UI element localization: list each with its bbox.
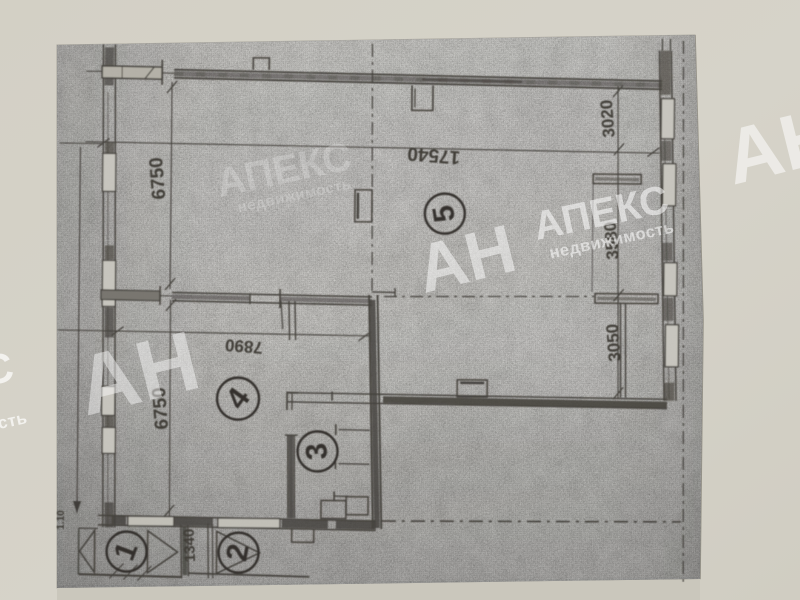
svg-text:3020: 3020: [597, 99, 619, 138]
svg-text:3050: 3050: [603, 323, 625, 362]
svg-text:7890: 7890: [224, 335, 263, 357]
svg-text:6750: 6750: [146, 156, 170, 200]
svg-text:1.10: 1.10: [56, 510, 67, 530]
svg-text:3: 3: [300, 442, 334, 461]
svg-text:17540: 17540: [407, 142, 461, 167]
svg-text:1340: 1340: [181, 528, 199, 562]
